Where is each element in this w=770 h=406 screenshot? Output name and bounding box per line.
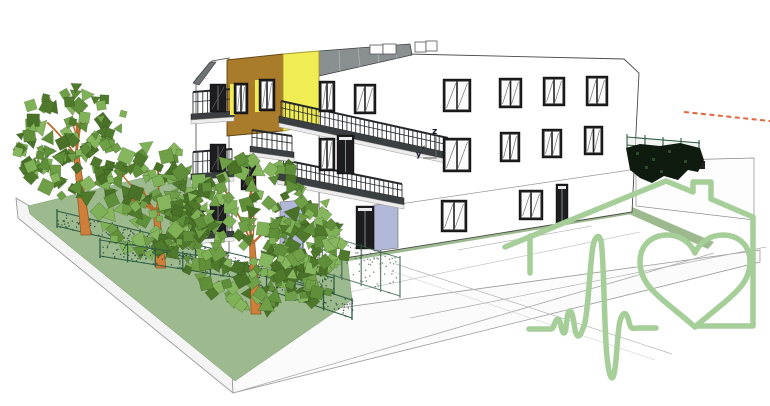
render-viewport: z y x: [0, 0, 770, 406]
door: [337, 135, 354, 174]
door: [556, 184, 568, 224]
window: [210, 84, 226, 112]
leaf: [338, 249, 350, 261]
leaf: [119, 110, 127, 118]
window: [230, 83, 248, 115]
door: [356, 206, 374, 249]
window: [443, 138, 471, 172]
leaf: [199, 276, 214, 291]
leaf: [299, 291, 306, 298]
window: [319, 138, 335, 171]
lavender-panel: [374, 203, 398, 251]
window: [519, 190, 543, 220]
window: [441, 200, 467, 232]
leaf: [96, 100, 106, 110]
leaf: [13, 147, 24, 158]
window: [500, 132, 520, 162]
axis-y-label: y: [416, 150, 422, 159]
window: [586, 76, 608, 106]
window: [499, 78, 522, 108]
leaf: [180, 184, 187, 191]
dashed-boundary-line: [684, 112, 770, 121]
roof-vent: [426, 41, 437, 51]
leaf: [159, 148, 175, 164]
roof-vent: [415, 42, 426, 52]
leaf: [269, 237, 276, 244]
leaf: [69, 118, 77, 126]
leaf: [183, 231, 194, 242]
window: [255, 79, 275, 112]
window: [443, 79, 471, 112]
leaf: [24, 99, 37, 112]
leaf: [76, 149, 83, 156]
leaf: [41, 93, 49, 101]
roof-vent: [383, 44, 396, 54]
architectural-3d-scene: z y x: [0, 0, 770, 406]
axis-z-label: z: [432, 127, 437, 137]
leaf: [324, 288, 333, 297]
leaf: [277, 165, 286, 174]
leaf: [78, 111, 90, 123]
window: [319, 81, 335, 112]
roof-vent: [370, 45, 383, 54]
axis-x-label: x: [422, 144, 426, 151]
leaf: [202, 182, 212, 192]
leaf: [285, 164, 297, 176]
window: [584, 126, 603, 155]
leaf: [156, 215, 163, 222]
leaf: [64, 96, 75, 107]
window: [354, 84, 376, 114]
window: [542, 129, 562, 158]
leaf: [176, 149, 183, 156]
window: [543, 77, 565, 106]
leaf: [36, 151, 45, 160]
leaf: [310, 285, 325, 300]
leaf: [114, 121, 126, 133]
leaf: [269, 228, 279, 238]
leaf: [107, 176, 115, 184]
leaf: [176, 239, 182, 245]
